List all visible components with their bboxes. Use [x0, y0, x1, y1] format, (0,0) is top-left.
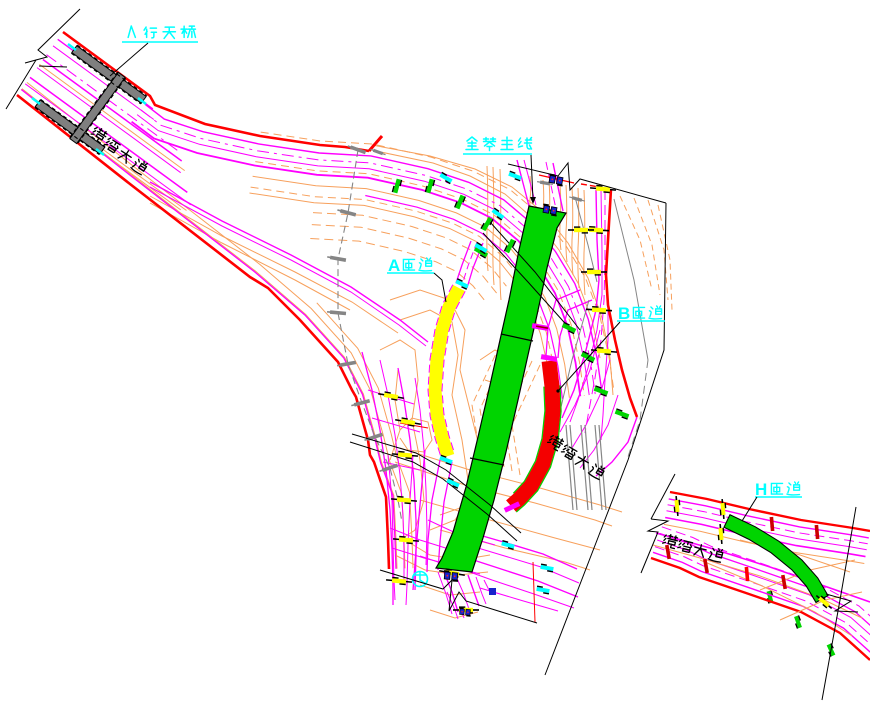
svg-text:H: H — [755, 480, 767, 499]
svg-text:B: B — [618, 304, 630, 323]
svg-text:A: A — [388, 256, 400, 275]
